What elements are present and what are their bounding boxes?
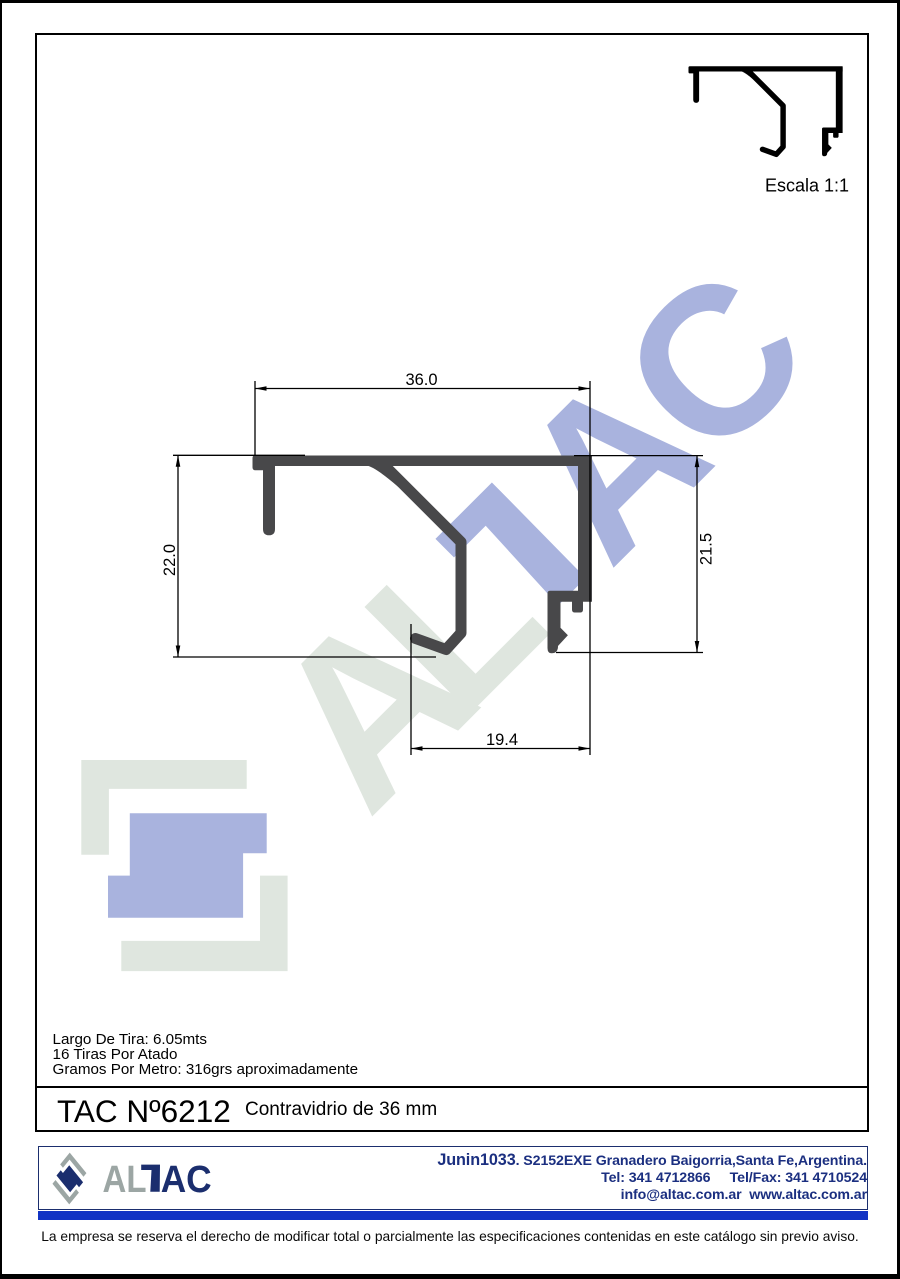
svg-text:21.5: 21.5 — [698, 533, 716, 565]
svg-text:19.4: 19.4 — [486, 731, 518, 749]
svg-text:36.0: 36.0 — [405, 371, 437, 389]
svg-text:Escala 1:1: Escala 1:1 — [765, 176, 849, 196]
svg-text:22.0: 22.0 — [161, 544, 179, 576]
